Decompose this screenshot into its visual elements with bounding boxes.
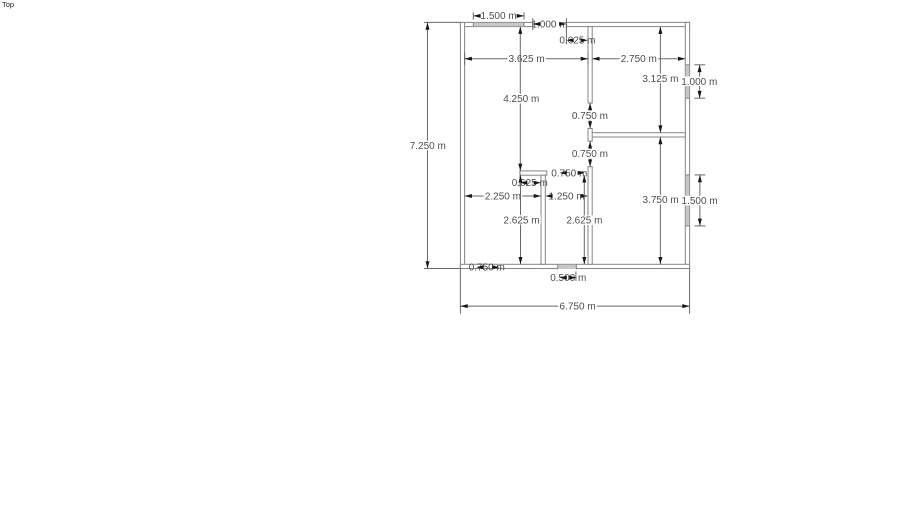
svg-text:1.000 m: 1.000 m xyxy=(681,77,717,88)
svg-text:1.500 m: 1.500 m xyxy=(481,11,517,22)
svg-text:1.500 m: 1.500 m xyxy=(682,196,718,207)
svg-text:2.750 m: 2.750 m xyxy=(621,54,657,65)
svg-text:0.625 m: 0.625 m xyxy=(559,36,595,47)
svg-text:1.250 m: 1.250 m xyxy=(549,191,585,202)
svg-text:7.250 m: 7.250 m xyxy=(410,141,446,152)
svg-text:2.625 m: 2.625 m xyxy=(566,216,602,227)
svg-text:2.625 m: 2.625 m xyxy=(503,215,539,226)
svg-text:0.750 m: 0.750 m xyxy=(469,263,505,274)
svg-text:2.250 m: 2.250 m xyxy=(485,191,521,202)
svg-text:0.625 m: 0.625 m xyxy=(512,178,548,189)
svg-text:6.750 m: 6.750 m xyxy=(560,302,596,313)
svg-text:3.750 m: 3.750 m xyxy=(643,195,679,206)
svg-text:Top: Top xyxy=(2,0,14,9)
svg-text:4.250 m: 4.250 m xyxy=(503,94,539,105)
svg-text:0.750 m: 0.750 m xyxy=(572,149,608,160)
svg-text:3.125 m: 3.125 m xyxy=(642,74,678,85)
svg-text:0.500 m: 0.500 m xyxy=(550,273,586,284)
svg-text:0.750 m: 0.750 m xyxy=(551,168,587,179)
svg-text:3.625 m: 3.625 m xyxy=(509,54,545,65)
svg-text:0.750 m: 0.750 m xyxy=(572,111,608,122)
